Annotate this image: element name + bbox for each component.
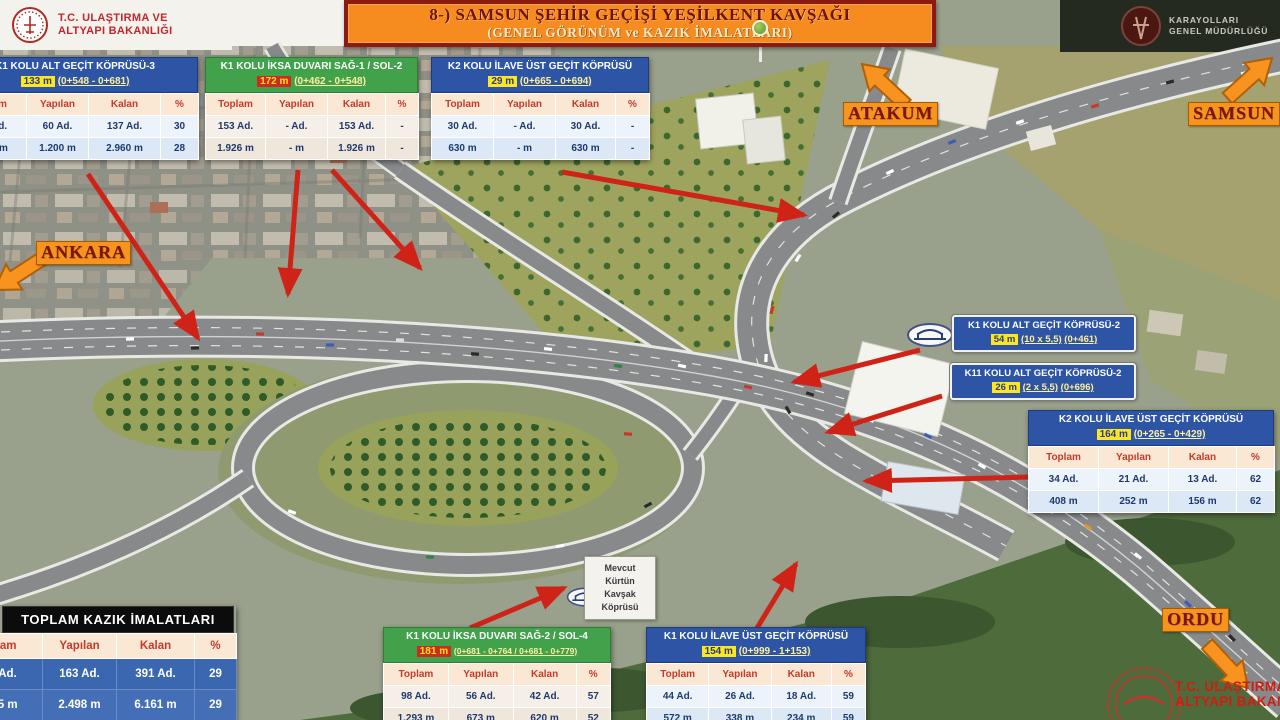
- column-header-row: Toplam Yapılan Kalan %: [206, 94, 419, 116]
- cell: 62: [1237, 469, 1275, 491]
- cell: 44 Ad.: [647, 686, 709, 708]
- cell: 197 Ad.: [0, 116, 27, 138]
- cell: 391 Ad.: [117, 659, 195, 690]
- table-k1-ilave-ust-gecit-koprusu: K1 KOLU İLAVE ÜST GEÇİT KÖPRÜSÜ 154 m (0…: [646, 627, 866, 720]
- cell: 408 m: [1029, 491, 1099, 513]
- cell: 42 Ad.: [513, 686, 576, 708]
- cell: - m: [266, 138, 328, 160]
- ministry-name-line2: ALTYAPI BAKANLIĞI: [1175, 695, 1280, 710]
- col-header: Toplam: [1029, 447, 1099, 469]
- table-toplam-kazik-imalatlari: TOPLAM KAZIK İMALATLARI Toplam Yapılan K…: [0, 606, 236, 720]
- cell: 30 Ad.: [556, 116, 616, 138]
- col-header: Toplam: [647, 664, 709, 686]
- length-badge: 29 m: [488, 76, 517, 87]
- bridge-station: (0+461): [1064, 334, 1097, 345]
- cell: 6.161 m: [117, 690, 195, 720]
- cell: 234 m: [771, 708, 831, 720]
- col-header: Kalan: [1169, 447, 1237, 469]
- table-header: K1 KOLU ALT GEÇİT KÖPRÜSÜ-3 133 m (0+548…: [0, 57, 198, 93]
- station-range: (0+265 - 0+429): [1134, 429, 1206, 440]
- ministry-name-line1: T.C. ULAŞTIRMA VE: [58, 12, 173, 25]
- direction-label-ordu: ORDU: [1162, 608, 1229, 632]
- cell: 30: [161, 116, 199, 138]
- slide-subtitle: (GENEL GÖRÜNÜM ve KAZIK İMALATLARI): [348, 25, 932, 41]
- cell: -: [386, 116, 419, 138]
- cell: 56 Ad.: [448, 686, 513, 708]
- col-header: %: [1237, 447, 1275, 469]
- table-row: 408 m 252 m 156 m 62: [1029, 491, 1275, 513]
- table-title: K1 KOLU İKSA DUVARI SAĞ-2 / SOL-4: [406, 631, 588, 642]
- table-row: 1.293 m 673 m 620 m 52: [384, 708, 611, 720]
- cell: 163 Ad.: [43, 659, 117, 690]
- col-header: Yapılan: [709, 664, 771, 686]
- bridge-station: (0+696): [1061, 382, 1094, 393]
- cell: 34 Ad.: [1029, 469, 1099, 491]
- cell: 673 m: [448, 708, 513, 720]
- cell: 1.293 m: [384, 708, 449, 720]
- table-row: 556 Ad. 163 Ad. 391 Ad. 29: [0, 659, 237, 690]
- table-row: 8.685 m 2.498 m 6.161 m 29: [0, 690, 237, 720]
- table-k1-iksa-duvari-sag2-sol4: K1 KOLU İKSA DUVARI SAĞ-2 / SOL-4 181 m …: [383, 627, 611, 720]
- cell: 30 Ad.: [432, 116, 494, 138]
- col-header: %: [161, 94, 199, 116]
- note-mevcut-kurtun-kavsak-koprusu: Mevcut Kürtün Kavşak Köprüsü: [584, 556, 656, 620]
- cell: 156 m: [1169, 491, 1237, 513]
- cell: 13 Ad.: [1169, 469, 1237, 491]
- length-badge: 164 m: [1097, 429, 1131, 440]
- table-title: K1 KOLU İKSA DUVARI SAĞ-1 / SOL-2: [221, 61, 403, 72]
- note-line: Kavşak: [587, 588, 653, 601]
- table-k2-ilave-ust-gecit-koprusu: K2 KOLU İLAVE ÜST GEÇİT KÖPRÜSÜ 164 m (0…: [1028, 410, 1274, 513]
- length-badge: 133 m: [21, 76, 55, 87]
- cell: - Ad.: [494, 116, 556, 138]
- cell: 153 Ad.: [206, 116, 266, 138]
- col-header: Kalan: [771, 664, 831, 686]
- cell: 1.926 m: [206, 138, 266, 160]
- table-header: K2 KOLU İLAVE ÜST GEÇİT KÖPRÜSÜ 29 m (0+…: [431, 57, 649, 93]
- table-row: 197 Ad. 60 Ad. 137 Ad. 30: [0, 116, 199, 138]
- cell: 2.498 m: [43, 690, 117, 720]
- column-header-row: Toplam Yapılan Kalan %: [1029, 447, 1275, 469]
- station-range: (0+665 - 0+694): [520, 76, 592, 87]
- col-header: Toplam: [0, 94, 27, 116]
- length-badge: 26 m: [992, 382, 1020, 393]
- table-row: 34 Ad. 21 Ad. 13 Ad. 62: [1029, 469, 1275, 491]
- cell: 630 m: [556, 138, 616, 160]
- cell: 18 Ad.: [771, 686, 831, 708]
- col-header: Kalan: [556, 94, 616, 116]
- label-k1-alt-gecit-koprusu-2: K1 KOLU ALT GEÇİT KÖPRÜSÜ-2 54 m (10 x 5…: [952, 315, 1136, 352]
- cell: 26 Ad.: [709, 686, 771, 708]
- col-header: Kalan: [89, 94, 161, 116]
- kgm-emblem-icon: [1120, 5, 1162, 47]
- cell: 153 Ad.: [328, 116, 386, 138]
- cell: 1.200 m: [27, 138, 89, 160]
- col-header: Yapılan: [266, 94, 328, 116]
- cell: 338 m: [709, 708, 771, 720]
- length-badge: 181 m: [417, 646, 451, 657]
- length-badge: 54 m: [991, 334, 1019, 345]
- column-header-row: Toplam Yapılan Kalan %: [0, 634, 237, 659]
- col-header: Yapılan: [448, 664, 513, 686]
- cell: -: [616, 116, 650, 138]
- col-header: Kalan: [513, 664, 576, 686]
- col-header: %: [576, 664, 610, 686]
- cell: -: [386, 138, 419, 160]
- title-banner: 8-) SAMSUN ŞEHİR GEÇİŞİ YEŞİLKENT KAVŞAĞ…: [344, 0, 936, 47]
- station-range: (0+999 - 1+153): [739, 646, 811, 657]
- table-title: TOPLAM KAZIK İMALATLARI: [2, 606, 234, 633]
- cell: 60 Ad.: [27, 116, 89, 138]
- cell: 556 Ad.: [0, 659, 43, 690]
- col-header: %: [831, 664, 865, 686]
- column-header-row: Toplam Yapılan Kalan %: [432, 94, 650, 116]
- cell: 137 Ad.: [89, 116, 161, 138]
- station-range: (0+548 - 0+681): [58, 76, 130, 87]
- cell: 59: [831, 686, 865, 708]
- cell: 98 Ad.: [384, 686, 449, 708]
- cell: 620 m: [513, 708, 576, 720]
- cell: 4.160 m: [0, 138, 27, 160]
- table-row: 98 Ad. 56 Ad. 42 Ad. 57: [384, 686, 611, 708]
- bridge-icon: [906, 322, 954, 348]
- cell: 29: [195, 659, 237, 690]
- ministry-logo-top-left: T.C. ULAŞTIRMA VE ALTYAPI BAKANLIĞI: [0, 0, 232, 50]
- length-badge: 154 m: [702, 646, 736, 657]
- cell: 57: [576, 686, 610, 708]
- bridge-dims: (10 x 5,5): [1021, 334, 1062, 345]
- col-header: %: [616, 94, 650, 116]
- label-title: K1 KOLU ALT GEÇİT KÖPRÜSÜ-2: [968, 320, 1120, 331]
- table-row: 44 Ad. 26 Ad. 18 Ad. 59: [647, 686, 866, 708]
- direction-label-atakum: ATAKUM: [843, 102, 938, 126]
- station-range: (0+462 - 0+548): [294, 76, 366, 87]
- col-header: Yapılan: [27, 94, 89, 116]
- note-line: Kürtün: [587, 575, 653, 588]
- col-header: Yapılan: [494, 94, 556, 116]
- col-header: Toplam: [432, 94, 494, 116]
- col-header: %: [386, 94, 419, 116]
- cell: 29: [195, 690, 237, 720]
- orchard: [318, 410, 618, 526]
- cell: - Ad.: [266, 116, 328, 138]
- length-badge: 172 m: [257, 76, 291, 87]
- label-title: K11 KOLU ALT GEÇİT KÖPRÜSÜ-2: [965, 368, 1122, 379]
- col-header: Toplam: [0, 634, 43, 659]
- column-header-row: Toplam Yapılan Kalan %: [384, 664, 611, 686]
- table-row: 630 m - m 630 m -: [432, 138, 650, 160]
- col-header: Kalan: [117, 634, 195, 659]
- table-header: K1 KOLU İLAVE ÜST GEÇİT KÖPRÜSÜ 154 m (0…: [646, 627, 866, 663]
- slide-title: 8-) SAMSUN ŞEHİR GEÇİŞİ YEŞİLKENT KAVŞAĞ…: [348, 5, 932, 25]
- table-row: 4.160 m 1.200 m 2.960 m 28: [0, 138, 199, 160]
- cell: 52: [576, 708, 610, 720]
- table-k1-alt-gecit-koprusu-3: K1 KOLU ALT GEÇİT KÖPRÜSÜ-3 133 m (0+548…: [0, 57, 198, 160]
- table-k1-iksa-duvari-sag1-sol2: K1 KOLU İKSA DUVARI SAĞ-1 / SOL-2 172 m …: [205, 57, 418, 160]
- table-header: K2 KOLU İLAVE ÜST GEÇİT KÖPRÜSÜ 164 m (0…: [1028, 410, 1274, 446]
- table-title: K2 KOLU İLAVE ÜST GEÇİT KÖPRÜSÜ: [448, 61, 632, 72]
- column-header-row: Toplam Yapılan Kalan %: [0, 94, 199, 116]
- table-header: K1 KOLU İKSA DUVARI SAĞ-2 / SOL-4 181 m …: [383, 627, 611, 663]
- cell: 21 Ad.: [1099, 469, 1169, 491]
- table-row: 572 m 338 m 234 m 59: [647, 708, 866, 720]
- direction-label-ankara: ANKARA: [36, 241, 131, 265]
- table-k2-ilave-ust-gecit-koprusu-kisa: K2 KOLU İLAVE ÜST GEÇİT KÖPRÜSÜ 29 m (0+…: [431, 57, 649, 160]
- ministry-logo-bottom-right: T.C. ULAŞTIRMA VE ALTYAPI BAKANLIĞI: [1075, 648, 1280, 720]
- cell: 28: [161, 138, 199, 160]
- col-header: Yapılan: [43, 634, 117, 659]
- cell: -: [616, 138, 650, 160]
- table-row: 30 Ad. - Ad. 30 Ad. -: [432, 116, 650, 138]
- cell: 252 m: [1099, 491, 1169, 513]
- cell: 62: [1237, 491, 1275, 513]
- table-row: 153 Ad. - Ad. 153 Ad. -: [206, 116, 419, 138]
- col-header: %: [195, 634, 237, 659]
- cell: 572 m: [647, 708, 709, 720]
- cell: 630 m: [432, 138, 494, 160]
- map-pin-icon: [752, 20, 768, 36]
- label-k11-alt-gecit-koprusu-2: K11 KOLU ALT GEÇİT KÖPRÜSÜ-2 26 m (2 x 5…: [950, 363, 1136, 400]
- slide: T.C. ULAŞTIRMA VE ALTYAPI BAKANLIĞI KARA…: [0, 0, 1280, 720]
- station-range: (0+681 - 0+764 / 0+681 - 0+779): [454, 646, 577, 656]
- col-header: Toplam: [206, 94, 266, 116]
- kgm-name-line1: KARAYOLLARI: [1169, 15, 1268, 26]
- cell: - m: [494, 138, 556, 160]
- col-header: Toplam: [384, 664, 449, 686]
- cell: 1.926 m: [328, 138, 386, 160]
- table-title: K2 KOLU İLAVE ÜST GEÇİT KÖPRÜSÜ: [1059, 414, 1243, 425]
- table-row: 1.926 m - m 1.926 m -: [206, 138, 419, 160]
- bridge-dims: (2 x 5,5): [1023, 382, 1058, 393]
- cell: 2.960 m: [89, 138, 161, 160]
- table-header: K1 KOLU İKSA DUVARI SAĞ-1 / SOL-2 172 m …: [205, 57, 418, 93]
- table-title: K1 KOLU İLAVE ÜST GEÇİT KÖPRÜSÜ: [664, 631, 848, 642]
- ministry-name-line2: ALTYAPI BAKANLIĞI: [58, 25, 173, 38]
- kgm-logo-top-right: KARAYOLLARI GENEL MÜDÜRLÜĞÜ: [1118, 0, 1280, 52]
- cell: 59: [831, 708, 865, 720]
- column-header-row: Toplam Yapılan Kalan %: [647, 664, 866, 686]
- col-header: Kalan: [328, 94, 386, 116]
- ministry-emblem-icon: [8, 3, 52, 47]
- cell: 8.685 m: [0, 690, 43, 720]
- col-header: Yapılan: [1099, 447, 1169, 469]
- kgm-name-line2: GENEL MÜDÜRLÜĞÜ: [1169, 26, 1268, 37]
- note-line: Köprüsü: [587, 601, 653, 614]
- note-line: Mevcut: [587, 562, 653, 575]
- direction-label-samsun: SAMSUN: [1188, 102, 1280, 126]
- table-title: K1 KOLU ALT GEÇİT KÖPRÜSÜ-3: [0, 61, 155, 72]
- ministry-name-line1: T.C. ULAŞTIRMA VE: [1175, 680, 1280, 695]
